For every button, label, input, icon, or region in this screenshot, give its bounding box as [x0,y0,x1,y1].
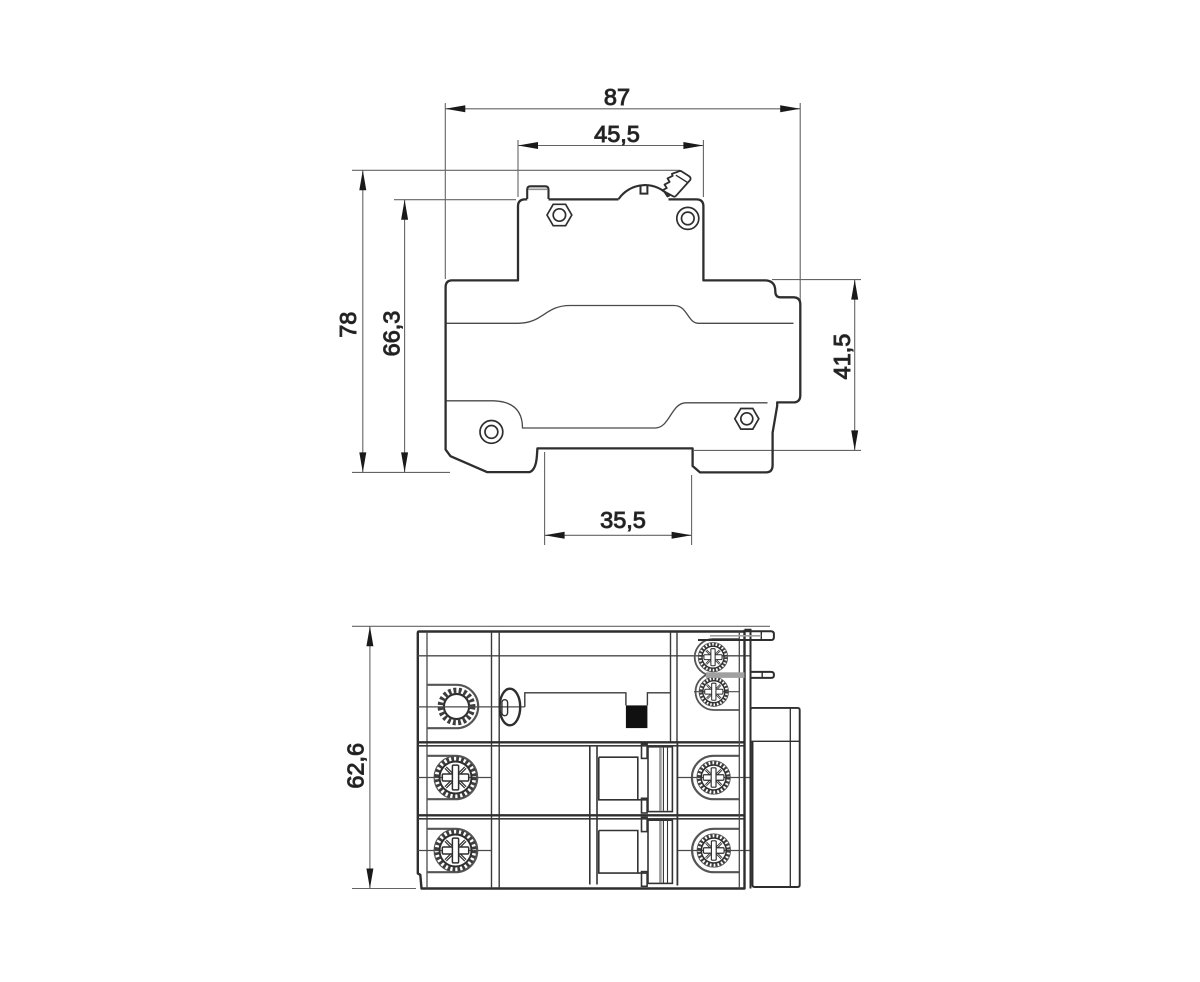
svg-text:78: 78 [335,312,361,338]
svg-text:87: 87 [604,84,630,110]
svg-text:41,5: 41,5 [829,334,855,380]
svg-text:62,6: 62,6 [343,743,369,789]
svg-text:35,5: 35,5 [600,507,646,533]
svg-text:66,3: 66,3 [379,311,405,357]
svg-text:45,5: 45,5 [594,121,640,147]
